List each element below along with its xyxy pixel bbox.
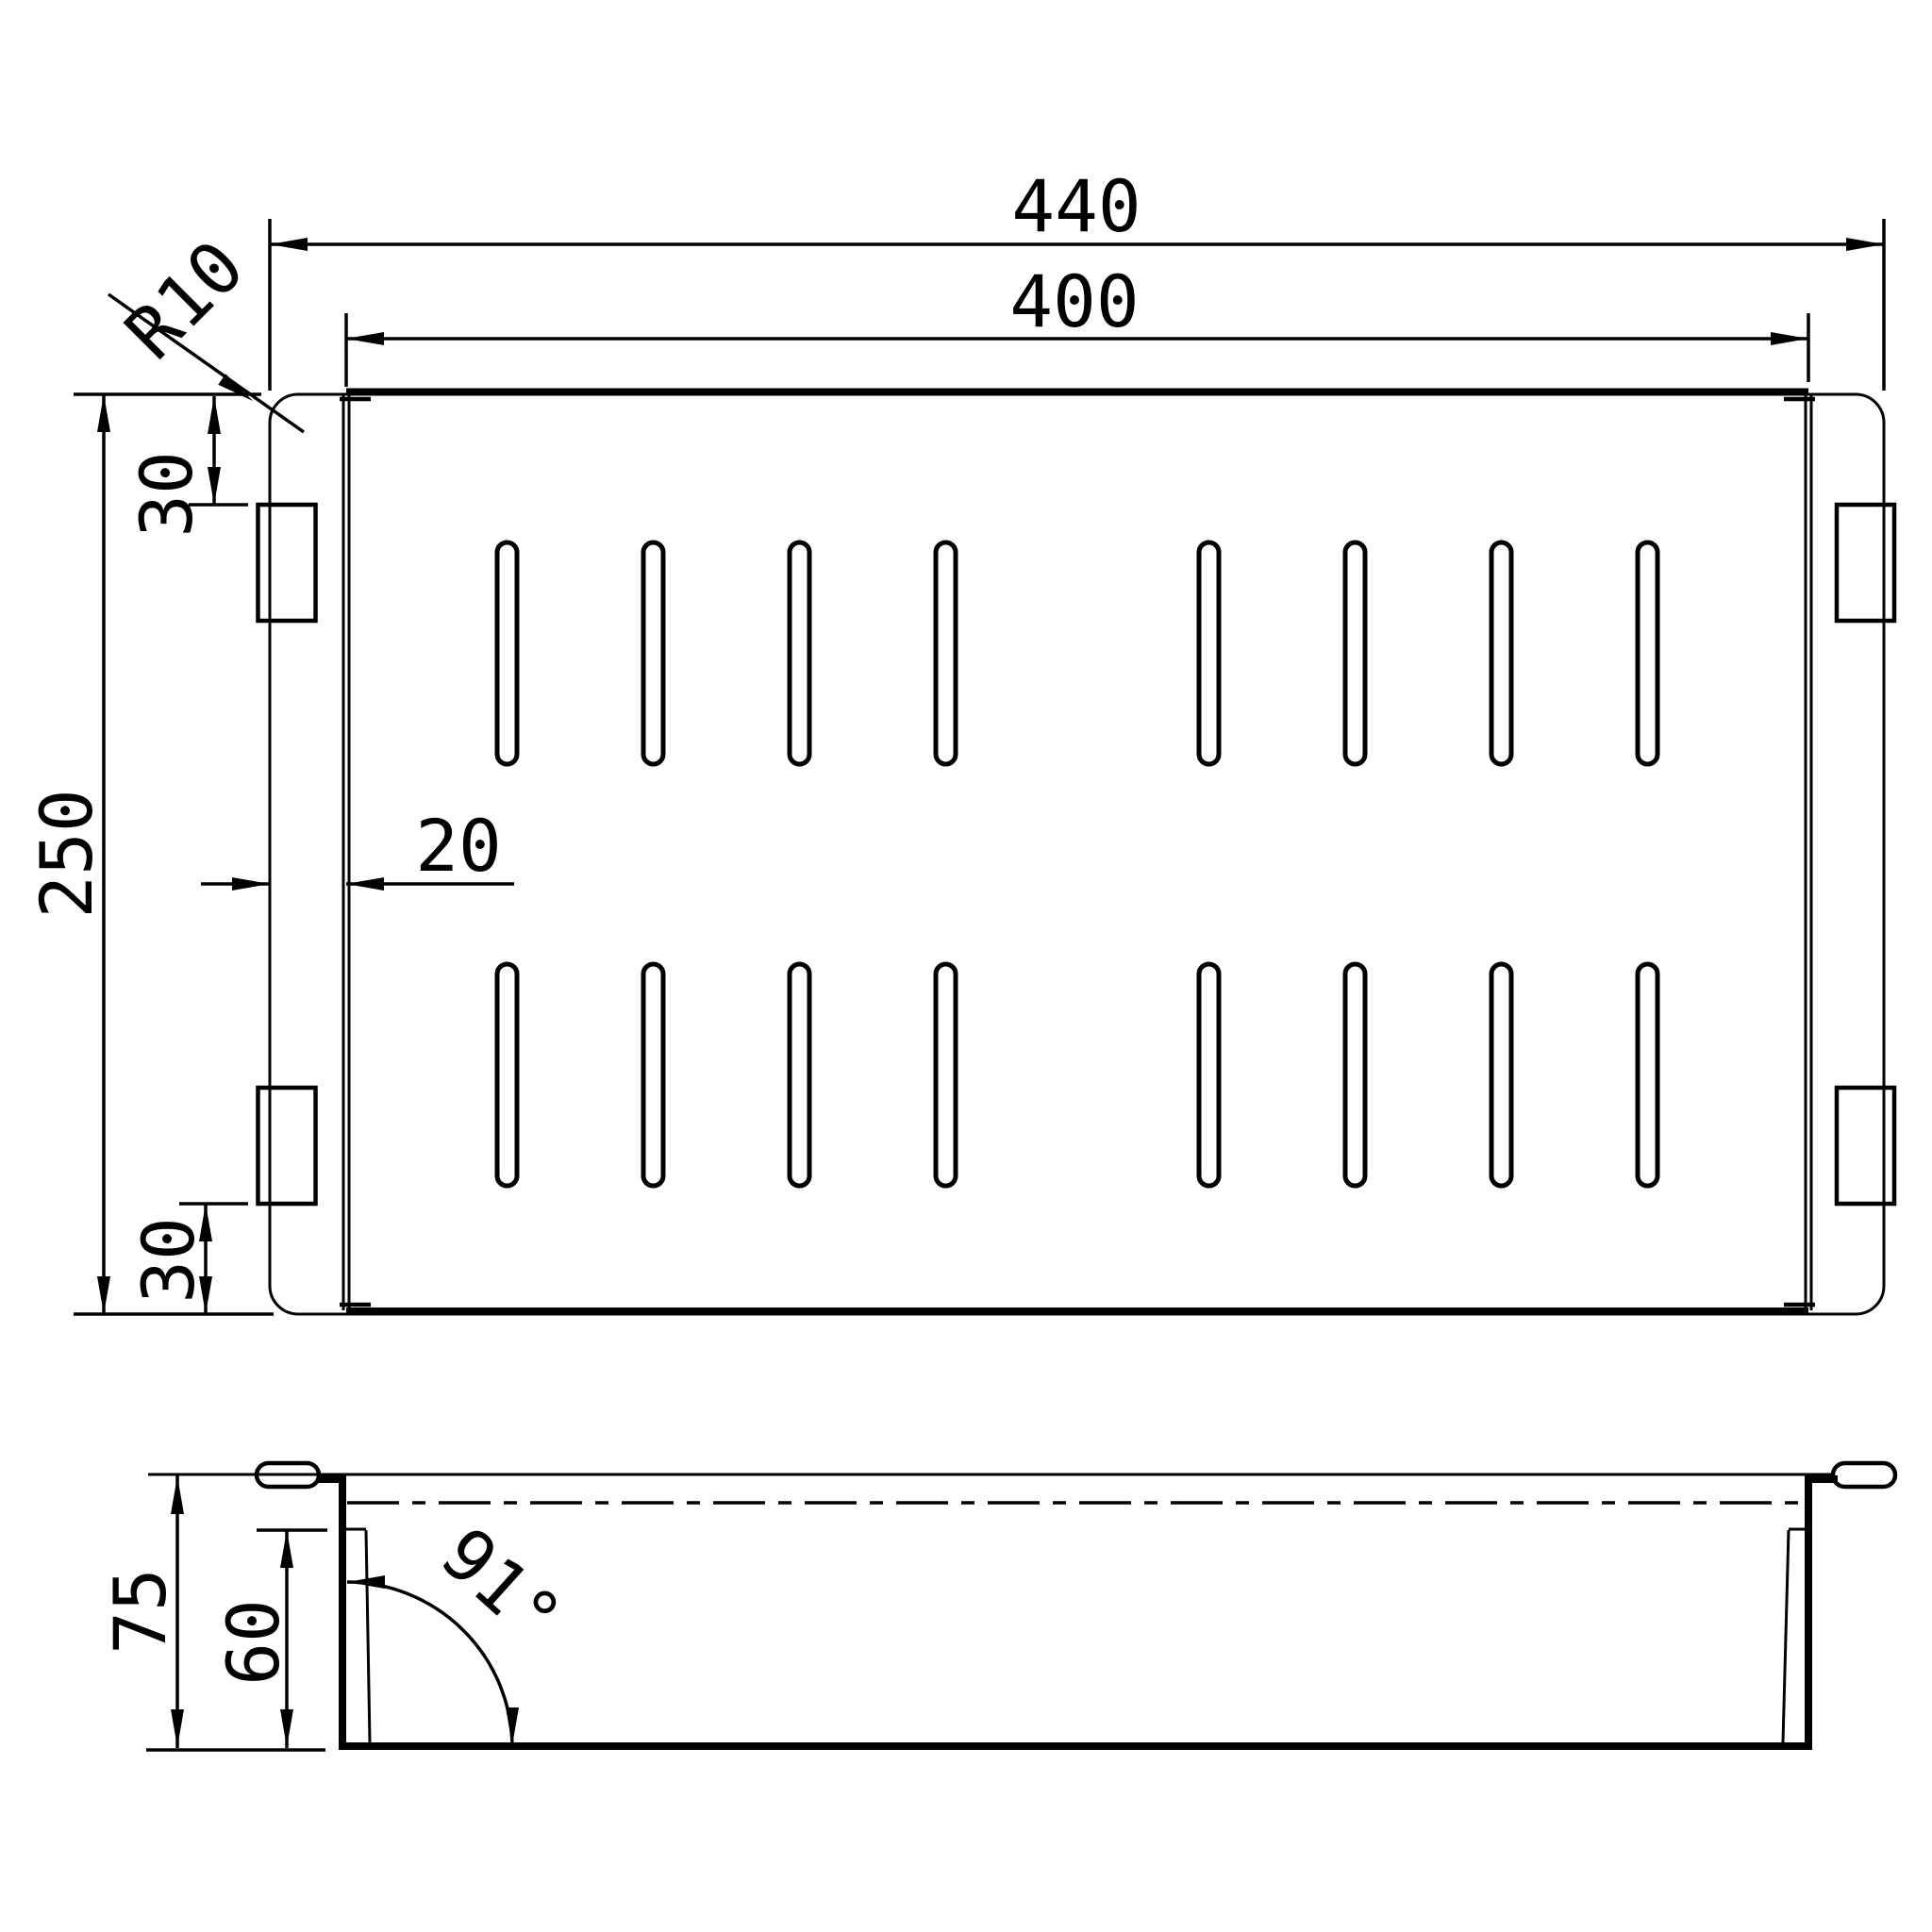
dimension-label-20: 20 (415, 804, 502, 888)
dimension-label-440: 440 (1011, 164, 1141, 248)
dimension-label-400: 400 (1009, 259, 1139, 343)
technical-drawing-canvas: 440 400 250 R10 30 30 (0, 0, 1932, 1932)
drawing-sheet: 440 400 250 R10 30 30 (0, 0, 1932, 1932)
dimension-label-60: 60 (211, 1599, 295, 1686)
dimension-label-75: 75 (98, 1568, 182, 1655)
dimension-label-250: 250 (25, 789, 108, 918)
dimension-label-30-top: 30 (125, 451, 208, 538)
dimension-label-30-bottom: 30 (126, 1217, 210, 1304)
